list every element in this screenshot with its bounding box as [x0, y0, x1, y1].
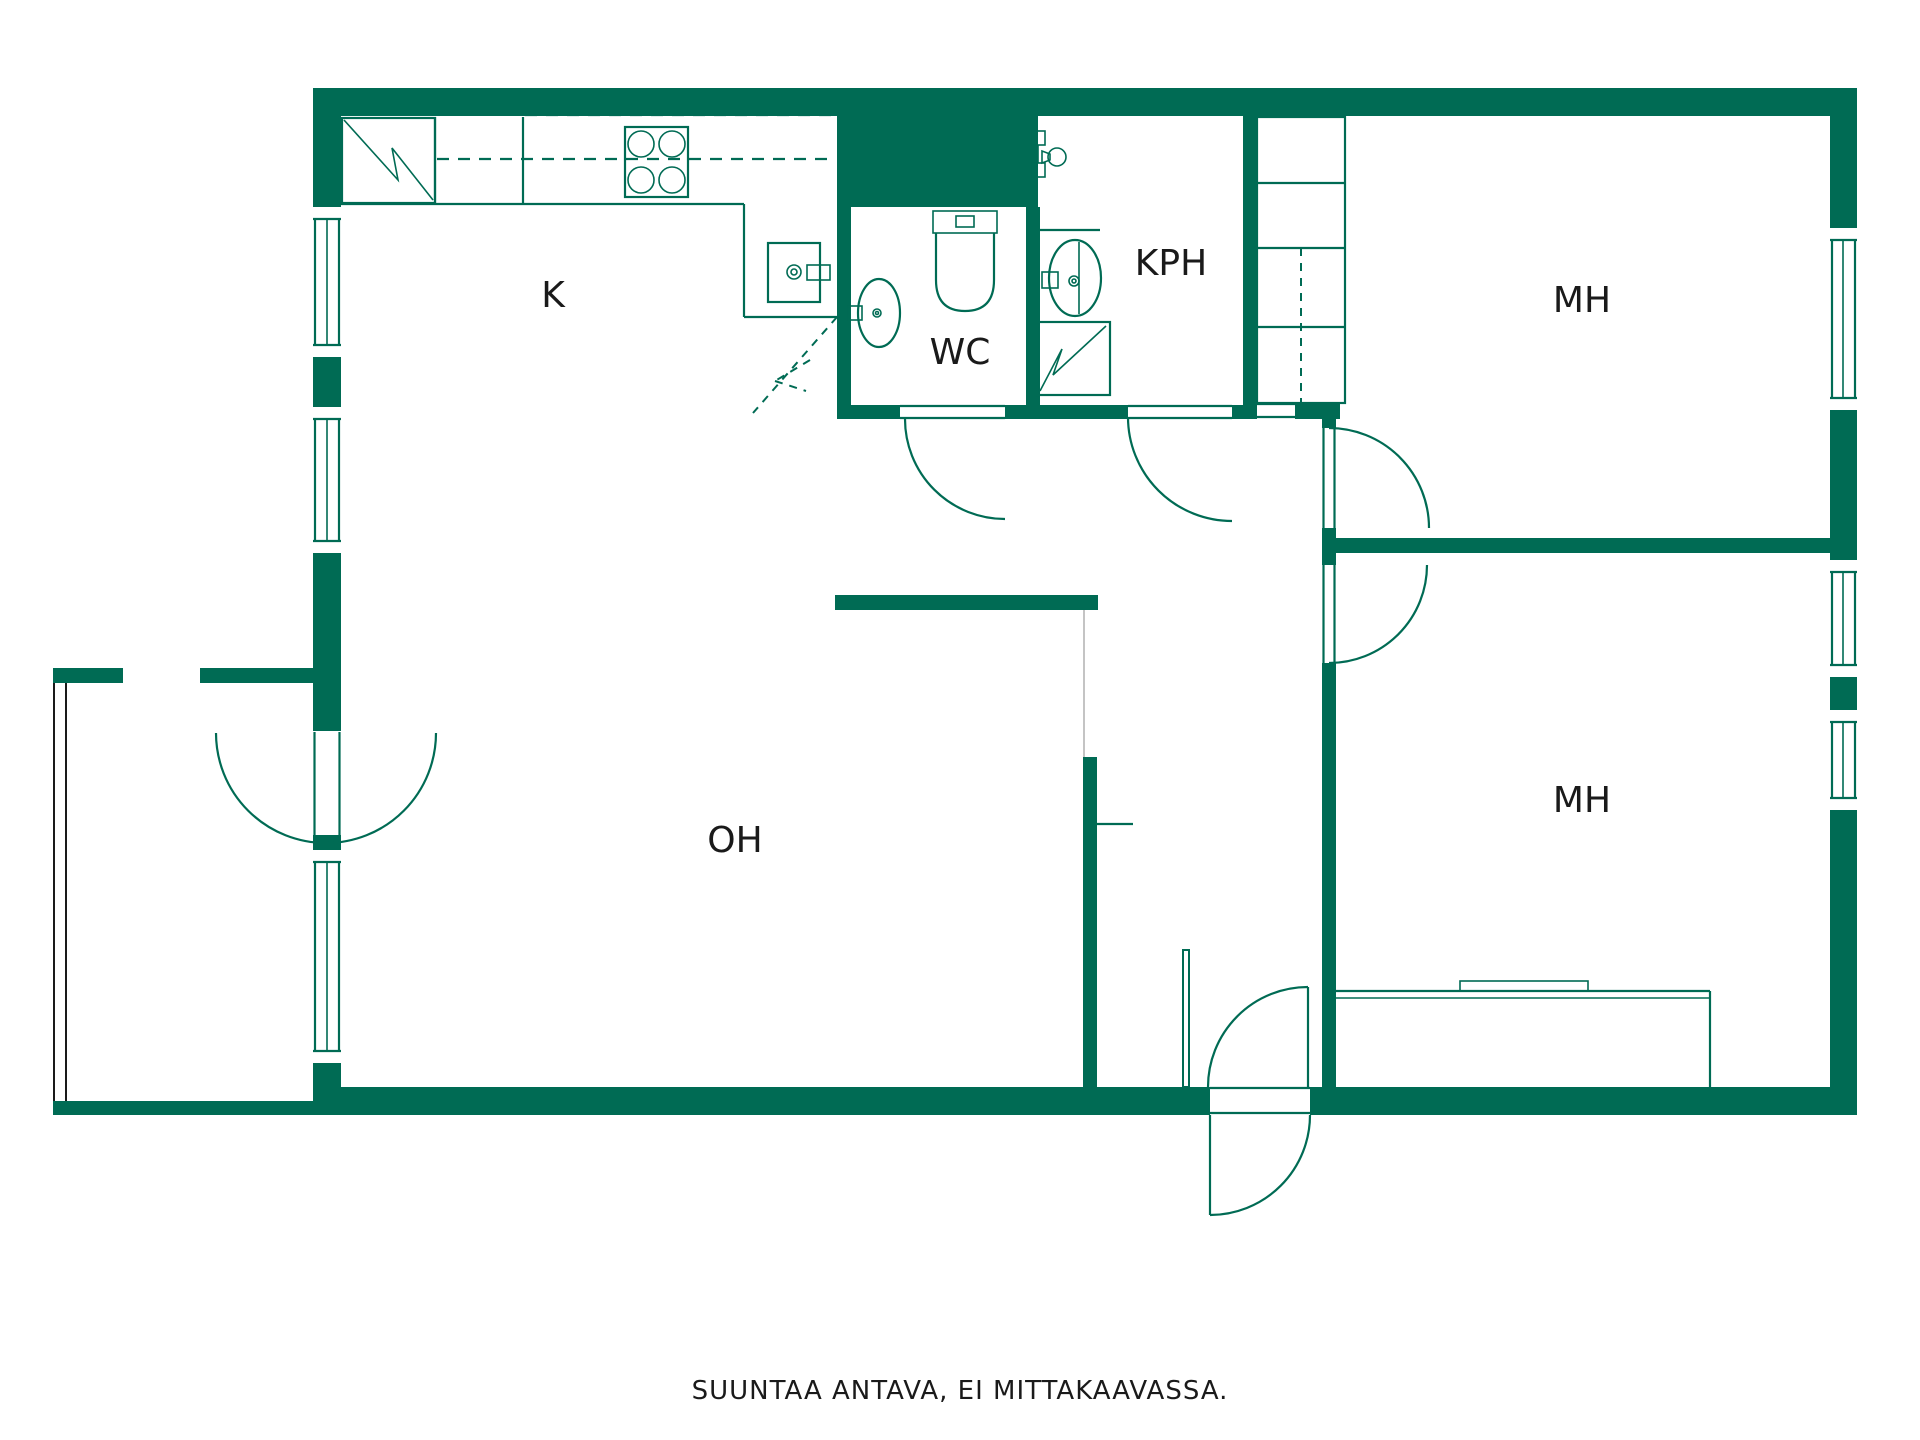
- wall-right: [1830, 810, 1857, 1115]
- bathroom-door: [1128, 406, 1232, 521]
- disclaimer-text: SUUNTAA ANTAVA, EI MITTAKAAVASSA.: [692, 1376, 1229, 1406]
- bedroom2-wardrobe: [1336, 981, 1710, 1087]
- window: [313, 407, 341, 553]
- fridge-icon: [342, 118, 435, 203]
- balcony-window: [123, 666, 200, 685]
- washing-machine-icon: [1037, 322, 1110, 395]
- wall-top: [313, 88, 1857, 116]
- entry-partition: [1183, 950, 1189, 1087]
- wall-hall-bedrooms: [1322, 403, 1336, 428]
- wc-sink-icon: [848, 279, 900, 347]
- wall-right: [1830, 677, 1857, 710]
- toilet-icon: [933, 211, 997, 311]
- wc-fixtures: [848, 211, 997, 347]
- bathroom-sink-icon: [1038, 230, 1101, 316]
- room-label-kitchen: K: [541, 275, 566, 316]
- wall-left: [313, 553, 341, 731]
- room-label-bedroom-2: MH: [1553, 780, 1611, 821]
- wall-oh-partial: [835, 595, 1098, 610]
- balcony: [53, 666, 313, 1115]
- kitchen-fixtures: [341, 115, 837, 413]
- bathroom-fixtures: [1032, 131, 1110, 395]
- wall-left: [313, 357, 341, 407]
- window: [1830, 710, 1857, 810]
- stove-icon: [625, 127, 688, 197]
- wall-right: [1830, 410, 1857, 560]
- room-label-bathroom: KPH: [1135, 243, 1207, 284]
- door-swing-arc: [1208, 987, 1308, 1087]
- room-label-wc: WC: [930, 332, 991, 373]
- wall-right: [1830, 88, 1857, 228]
- wall-bottom: [1310, 1087, 1857, 1115]
- bedroom2-door: [1324, 565, 1428, 663]
- kitchen-opening-dashed: [753, 317, 837, 413]
- balcony-door: [216, 732, 436, 843]
- bedroom1-door: [1324, 428, 1430, 528]
- wall-wc-kph-bottom: [1005, 405, 1128, 419]
- closet-opening: [1257, 404, 1295, 417]
- window: [1830, 228, 1857, 410]
- room-label-living-room: OH: [707, 820, 762, 861]
- wall-bottom: [313, 1087, 1210, 1115]
- balcony-top-rail: [200, 668, 313, 683]
- window: [313, 207, 341, 357]
- wall-left: [313, 88, 341, 207]
- door-swing-arc: [1210, 1115, 1310, 1215]
- wall-bedroom-divider: [1322, 538, 1832, 553]
- closet-cabinets: [1257, 117, 1345, 403]
- door-swing-arc: [1329, 565, 1427, 663]
- door-swing-arc: [905, 419, 1005, 519]
- wall-shaft-block: [837, 88, 1038, 207]
- wc-door: [900, 406, 1005, 519]
- hallway-details: [1084, 610, 1189, 1087]
- wall-hall-bedrooms: [1322, 663, 1336, 1087]
- floorplan-page: K WC KPH MH MH OH SUUNTAA ANTAVA, EI MIT…: [0, 0, 1920, 1440]
- window: [313, 850, 341, 1063]
- wall-wc-bottom: [851, 405, 900, 419]
- door-swing-arc: [216, 733, 436, 843]
- room-label-bedroom-1: MH: [1553, 280, 1611, 321]
- entry-door: [1208, 987, 1310, 1215]
- kitchen-sink-icon: [768, 243, 830, 302]
- wall-wc-left: [837, 207, 851, 419]
- balcony-bottom-rail: [53, 1101, 313, 1115]
- wall-oh-hall: [1083, 757, 1097, 1087]
- wall-kph-right: [1243, 116, 1257, 419]
- window: [1830, 560, 1857, 677]
- balcony-top-rail: [53, 668, 123, 683]
- door-swing-arc: [1329, 428, 1429, 528]
- door-swing-arc: [1128, 417, 1232, 521]
- floorplan-drawing: K WC KPH MH MH OH SUUNTAA ANTAVA, EI MIT…: [0, 0, 1920, 1440]
